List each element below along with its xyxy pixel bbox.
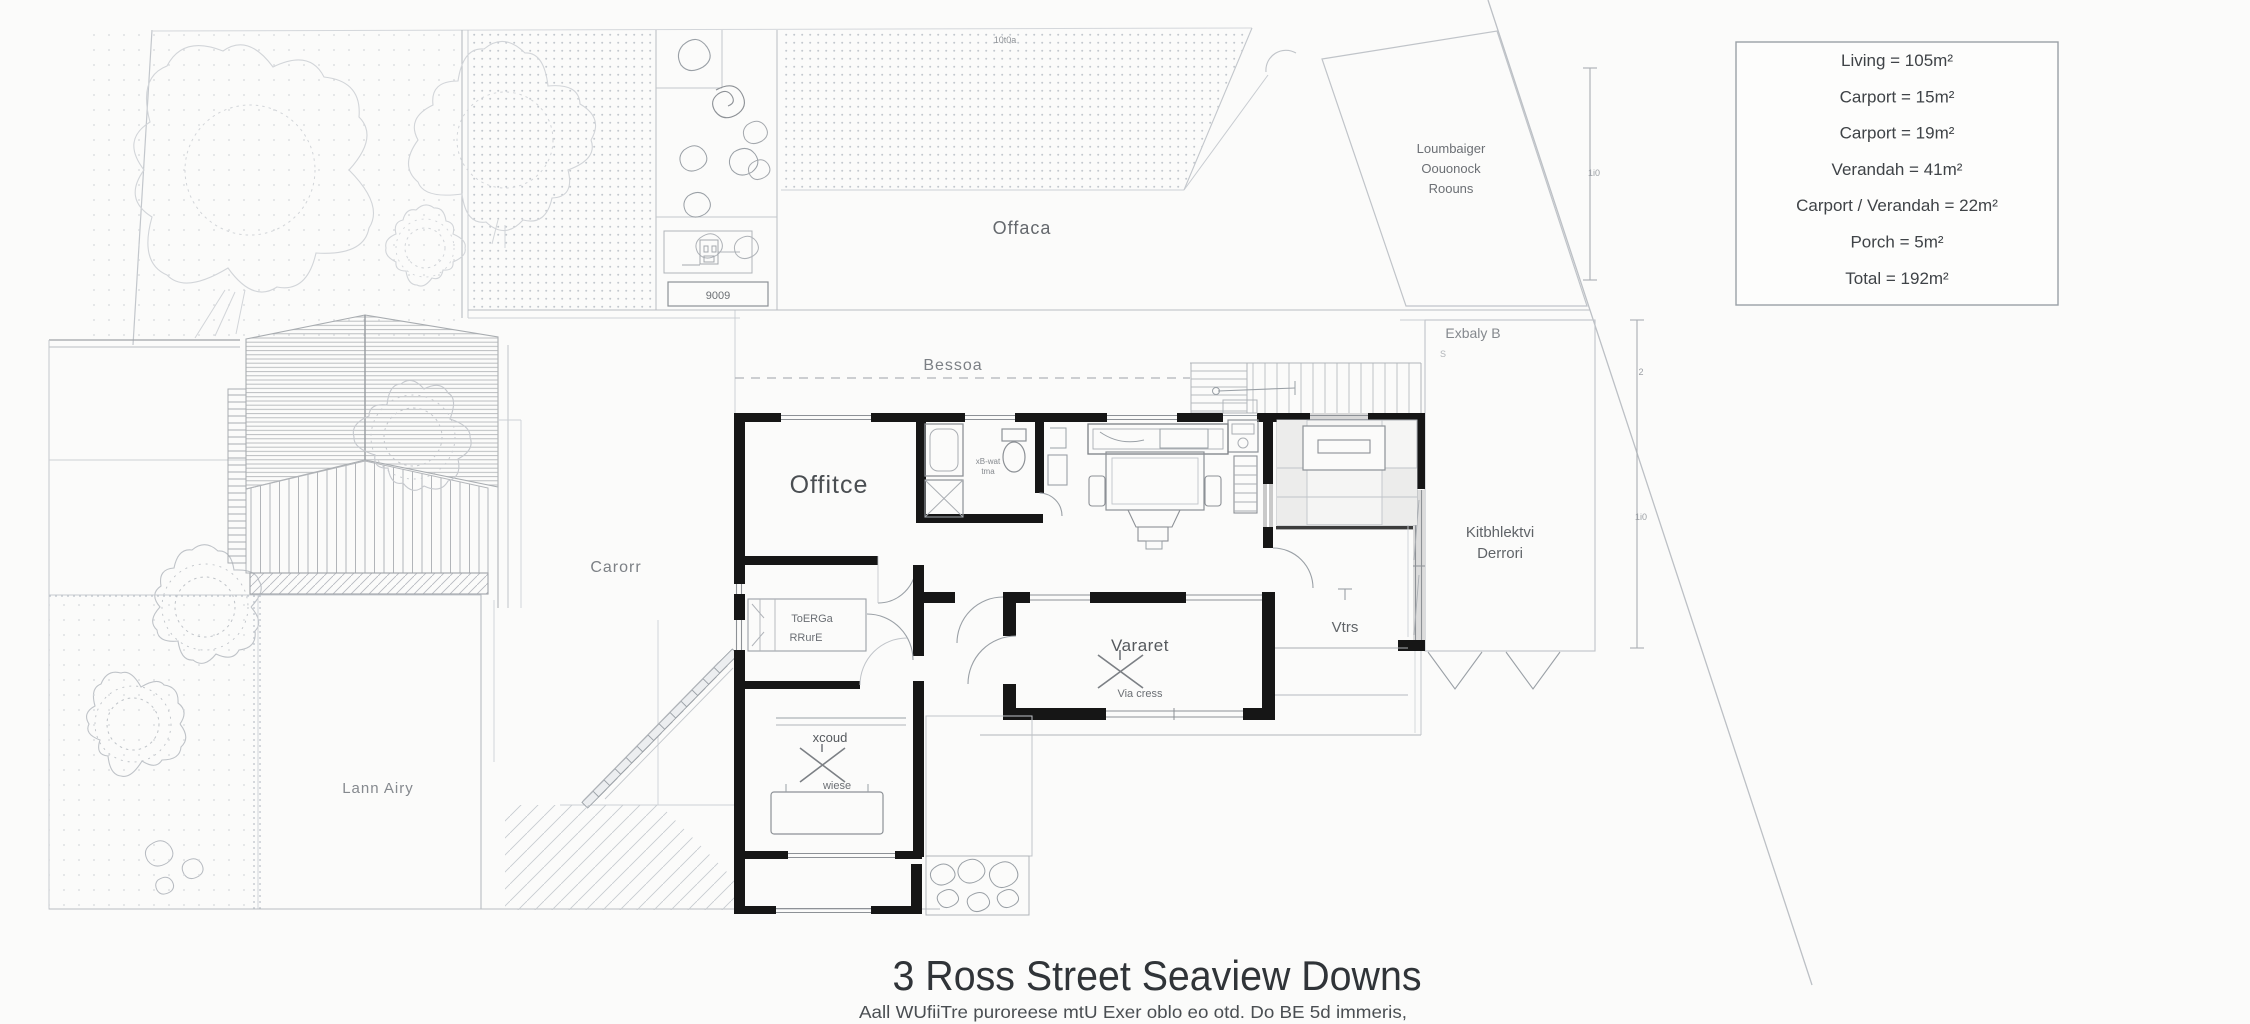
svg-text:Bessoa: Bessoa [923,357,982,374]
svg-text:10t0a: 10t0a [994,35,1017,45]
svg-text:1i0: 1i0 [1588,168,1600,178]
svg-text:9009: 9009 [706,290,730,302]
svg-text:ToERGa: ToERGa [791,613,833,625]
svg-text:Kitbhlektvi: Kitbhlektvi [1466,524,1534,541]
svg-text:1i0: 1i0 [1635,512,1647,522]
svg-text:Via cress: Via cress [1117,688,1163,700]
svg-text:Lann Airy: Lann Airy [342,780,414,797]
svg-text:2: 2 [1638,367,1643,377]
svg-text:Offaca: Offaca [993,218,1052,238]
svg-text:Offitce: Offitce [790,471,869,499]
svg-text:Verandah = 41m²: Verandah = 41m² [1832,160,1963,179]
svg-text:xcoud: xcoud [813,730,848,745]
svg-text:S: S [1440,349,1446,359]
svg-text:Total = 192m²: Total = 192m² [1845,269,1949,288]
svg-text:3 Ross Street Seaview Downs: 3 Ross Street Seaview Downs [893,952,1422,999]
svg-text:Living = 105m²: Living = 105m² [1841,51,1953,70]
svg-text:Vtrs: Vtrs [1332,619,1359,636]
svg-text:Carorr: Carorr [590,559,641,576]
svg-text:RRurE: RRurE [789,632,822,644]
svg-text:Carport = 15m²: Carport = 15m² [1840,87,1955,106]
svg-text:xB-wat: xB-wat [976,457,1001,466]
svg-text:Aall WUfiiTre puroreese mtU Ex: Aall WUfiiTre puroreese mtU Exer oblo eo… [859,1002,1407,1022]
svg-text:Exbaly B: Exbaly B [1445,325,1500,341]
svg-text:Carport / Verandah = 22m²: Carport / Verandah = 22m² [1796,196,1998,215]
svg-text:Carport = 19m²: Carport = 19m² [1840,124,1955,143]
svg-text:wiese: wiese [822,780,851,792]
svg-text:Roouns: Roouns [1429,181,1474,196]
svg-text:Derrori: Derrori [1477,545,1523,562]
svg-text:Loumbaiger: Loumbaiger [1417,141,1486,156]
svg-text:Oouonock: Oouonock [1421,161,1481,176]
svg-text:Porch = 5m²: Porch = 5m² [1850,233,1943,252]
svg-text:tma: tma [981,467,995,476]
